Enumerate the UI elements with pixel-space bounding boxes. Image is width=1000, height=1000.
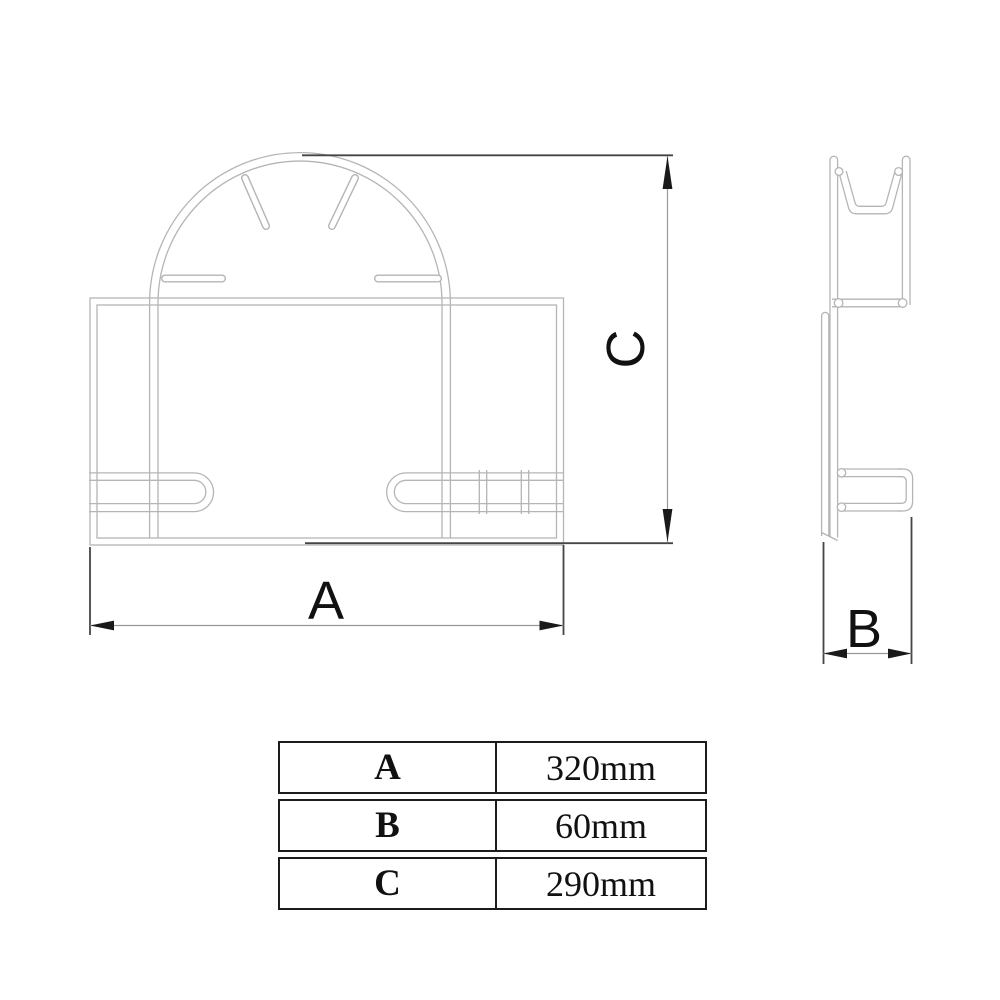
dim-value-cell: 320mm xyxy=(497,743,705,792)
arch-spoke-right xyxy=(332,178,355,226)
left-rail-outer xyxy=(89,473,214,512)
dim-b-label: B xyxy=(846,599,882,659)
dim-label-cell: A xyxy=(280,743,497,792)
side-cup-rod-end-right xyxy=(895,168,903,176)
side-rail-top xyxy=(837,469,902,477)
table-row: B 60mm xyxy=(278,799,707,852)
side-back-bar xyxy=(822,312,829,536)
dim-label-cell: C xyxy=(280,859,497,908)
dimension-b: B xyxy=(824,517,912,664)
side-connector-rod xyxy=(832,299,907,308)
dimension-c: C xyxy=(302,155,673,543)
dim-b-arrow-right xyxy=(888,649,912,659)
side-hook-rod xyxy=(902,156,910,305)
dim-c-arrow-top xyxy=(663,156,673,189)
side-rail-bend-inner xyxy=(897,477,906,504)
table-row: C 290mm xyxy=(278,857,707,910)
rail-crossbar-1 xyxy=(479,470,486,514)
left-rail-inner xyxy=(89,480,206,503)
dimension-a: A xyxy=(90,545,564,635)
side-view xyxy=(822,156,913,540)
dim-value-cell: 60mm xyxy=(497,801,705,850)
side-front-rod xyxy=(830,156,838,537)
dim-a-arrow-left xyxy=(90,621,114,631)
dim-value-cell: 290mm xyxy=(497,859,705,908)
side-rail-bottom xyxy=(837,503,902,511)
arch-spoke-left xyxy=(245,178,266,226)
dim-c-label: C xyxy=(596,330,656,369)
front-plate-outer xyxy=(90,298,564,545)
dim-label-cell: B xyxy=(280,801,497,850)
dimensions-table: A 320mm B 60mm C 290mm xyxy=(278,741,707,915)
front-view xyxy=(89,153,564,545)
rail-crossbar-2 xyxy=(521,470,528,514)
dim-a-arrow-right xyxy=(540,621,564,631)
side-cup-inner xyxy=(846,171,895,206)
side-cup-rod-end-left xyxy=(835,168,843,176)
dim-a-label: A xyxy=(308,571,344,631)
table-row: A 320mm xyxy=(278,741,707,794)
dim-c-arrow-bottom xyxy=(663,509,673,542)
side-rail-bend-outer xyxy=(897,469,913,511)
right-rail-outer xyxy=(387,473,564,512)
dim-b-arrow-left xyxy=(824,649,848,659)
